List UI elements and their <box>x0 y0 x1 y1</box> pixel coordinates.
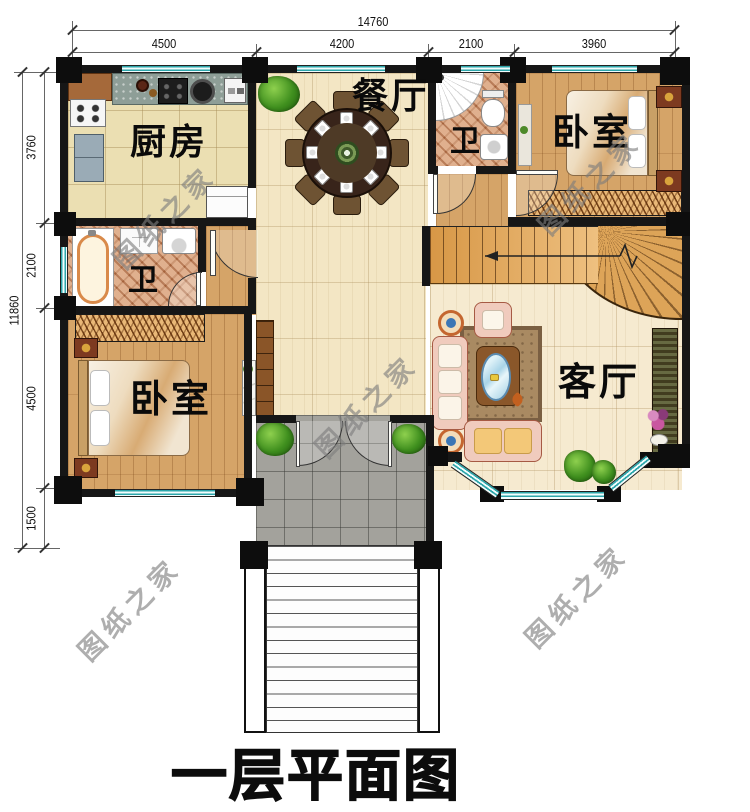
pillar <box>240 541 268 569</box>
centerpiece-icon <box>335 141 359 165</box>
pillar <box>242 57 268 83</box>
pillar <box>54 476 82 504</box>
bathtub-icon <box>77 234 109 304</box>
plant-icon <box>256 422 294 456</box>
pillar <box>428 446 448 466</box>
sofa-cushion <box>438 396 462 420</box>
step-rail-left <box>244 545 266 733</box>
pillar <box>660 57 690 85</box>
dim-seg: 3760 <box>24 122 39 173</box>
dim-line <box>44 72 45 548</box>
cooktop-icon <box>70 99 106 127</box>
dim-total-height: 11860 <box>7 285 22 336</box>
nightstand-icon <box>74 458 98 478</box>
side-table-decor <box>446 318 456 328</box>
wall <box>256 415 296 423</box>
shoe-cabinet <box>256 320 274 416</box>
faucet-icon <box>88 230 96 236</box>
tray-icon <box>490 374 499 381</box>
sofa-cushion <box>438 344 462 368</box>
dim-seg: 3960 <box>570 36 618 51</box>
page-title: 一层平面图 <box>148 731 484 812</box>
window <box>461 65 510 73</box>
toilet-icon <box>481 99 505 127</box>
pillar <box>54 296 76 320</box>
dim-seg: 2100 <box>447 36 495 51</box>
fridge-icon <box>74 134 104 182</box>
window <box>297 65 385 73</box>
dim-seg: 4200 <box>318 36 366 51</box>
step-rail-right <box>418 545 440 733</box>
wall <box>426 415 434 547</box>
washbasin-icon <box>480 134 508 160</box>
wall <box>248 65 256 188</box>
stair-direction-arrow <box>460 238 640 278</box>
dining-chair <box>333 195 361 215</box>
wall <box>248 218 256 230</box>
nightstand-icon <box>74 338 98 358</box>
bedroom-door-leaf <box>210 230 216 276</box>
nightstand-icon <box>656 170 682 192</box>
pillar <box>658 444 690 468</box>
watermark: 图纸之家 <box>68 548 189 669</box>
pillar <box>56 57 82 83</box>
wall <box>198 226 206 272</box>
loveseat-cushion <box>474 428 502 454</box>
window <box>552 65 637 73</box>
bay-window <box>501 491 604 500</box>
pillar <box>236 478 264 506</box>
headboard <box>78 360 88 456</box>
dim-seg: 2100 <box>24 240 39 291</box>
room-label-bedroom-bottom: 卧室 <box>130 381 212 419</box>
dim-seg: 4500 <box>24 373 39 424</box>
bedroom-door-leaf <box>516 170 558 175</box>
plant-icon <box>392 424 426 454</box>
floor-plan-canvas: 14760 4500 4200 2100 3960 11860 <box>0 0 750 812</box>
plant-icon <box>520 126 528 134</box>
plant-icon <box>564 450 596 482</box>
flowers-icon <box>646 408 670 430</box>
pillow-icon <box>90 370 110 406</box>
loveseat-cushion <box>504 428 532 454</box>
window <box>122 65 210 73</box>
wall <box>422 226 430 286</box>
toilet-tank-icon <box>482 90 504 98</box>
room-label-kitchen: 厨房 <box>130 124 208 160</box>
bathroom-door-leaf <box>196 272 201 306</box>
entry-steps <box>266 545 418 733</box>
sofa-cushion <box>438 370 462 394</box>
wall <box>244 306 252 497</box>
pillow-icon <box>90 410 110 446</box>
room-label-bath-top: 卫 <box>450 127 483 157</box>
side-table-decor <box>446 436 456 446</box>
wall <box>60 306 252 314</box>
wall <box>682 65 690 462</box>
entry-door-leaf <box>388 421 392 467</box>
armchair-cushion <box>482 310 504 330</box>
dim-line <box>72 30 675 31</box>
jar-icon <box>149 89 157 97</box>
window <box>60 247 68 293</box>
window <box>115 489 215 497</box>
wok-icon <box>190 79 215 104</box>
room-label-dining: 餐厅 <box>352 78 430 114</box>
dining-chair <box>389 139 409 167</box>
dim-seg: 4500 <box>140 36 188 51</box>
dresser-icon <box>518 104 532 166</box>
room-label-living: 客厅 <box>558 364 640 402</box>
entry-door-leaf <box>296 421 300 467</box>
gas-stove-icon <box>158 78 188 104</box>
nightstand-icon <box>656 86 682 108</box>
bathroom-door-leaf <box>433 174 438 214</box>
watermark: 图纸之家 <box>515 535 636 656</box>
pillar <box>666 212 690 236</box>
pot-icon <box>136 79 149 92</box>
pillar <box>54 212 76 236</box>
wall <box>428 166 438 174</box>
dim-line <box>72 52 675 53</box>
dim-total-width: 14760 <box>348 14 399 29</box>
pillar <box>414 541 442 569</box>
dim-seg: 1500 <box>24 493 39 544</box>
